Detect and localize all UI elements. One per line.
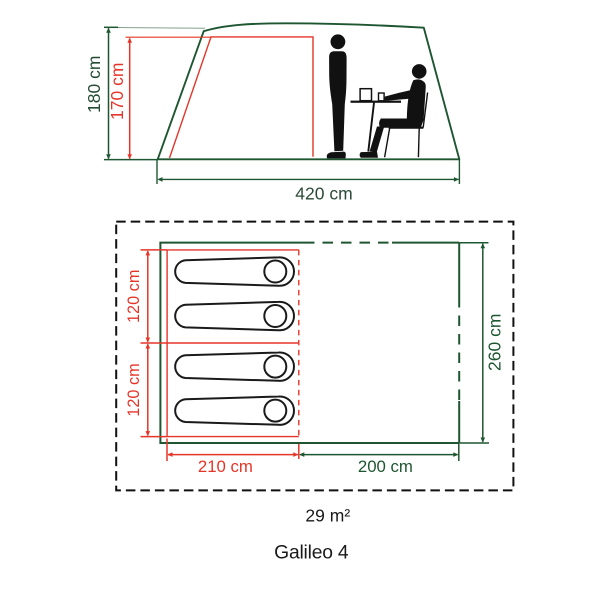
svg-text:420 cm: 420 cm	[295, 184, 352, 204]
svg-text:120 cm: 120 cm	[125, 363, 143, 416]
svg-text:180 cm: 180 cm	[84, 56, 104, 113]
svg-text:Galileo 4: Galileo 4	[274, 543, 349, 564]
svg-text:260 cm: 260 cm	[485, 314, 505, 371]
svg-text:29 m²: 29 m²	[305, 505, 350, 525]
svg-text:170 cm: 170 cm	[107, 63, 127, 120]
svg-text:120 cm: 120 cm	[125, 270, 143, 323]
svg-text:200 cm: 200 cm	[358, 457, 413, 476]
svg-text:210 cm: 210 cm	[198, 457, 253, 476]
